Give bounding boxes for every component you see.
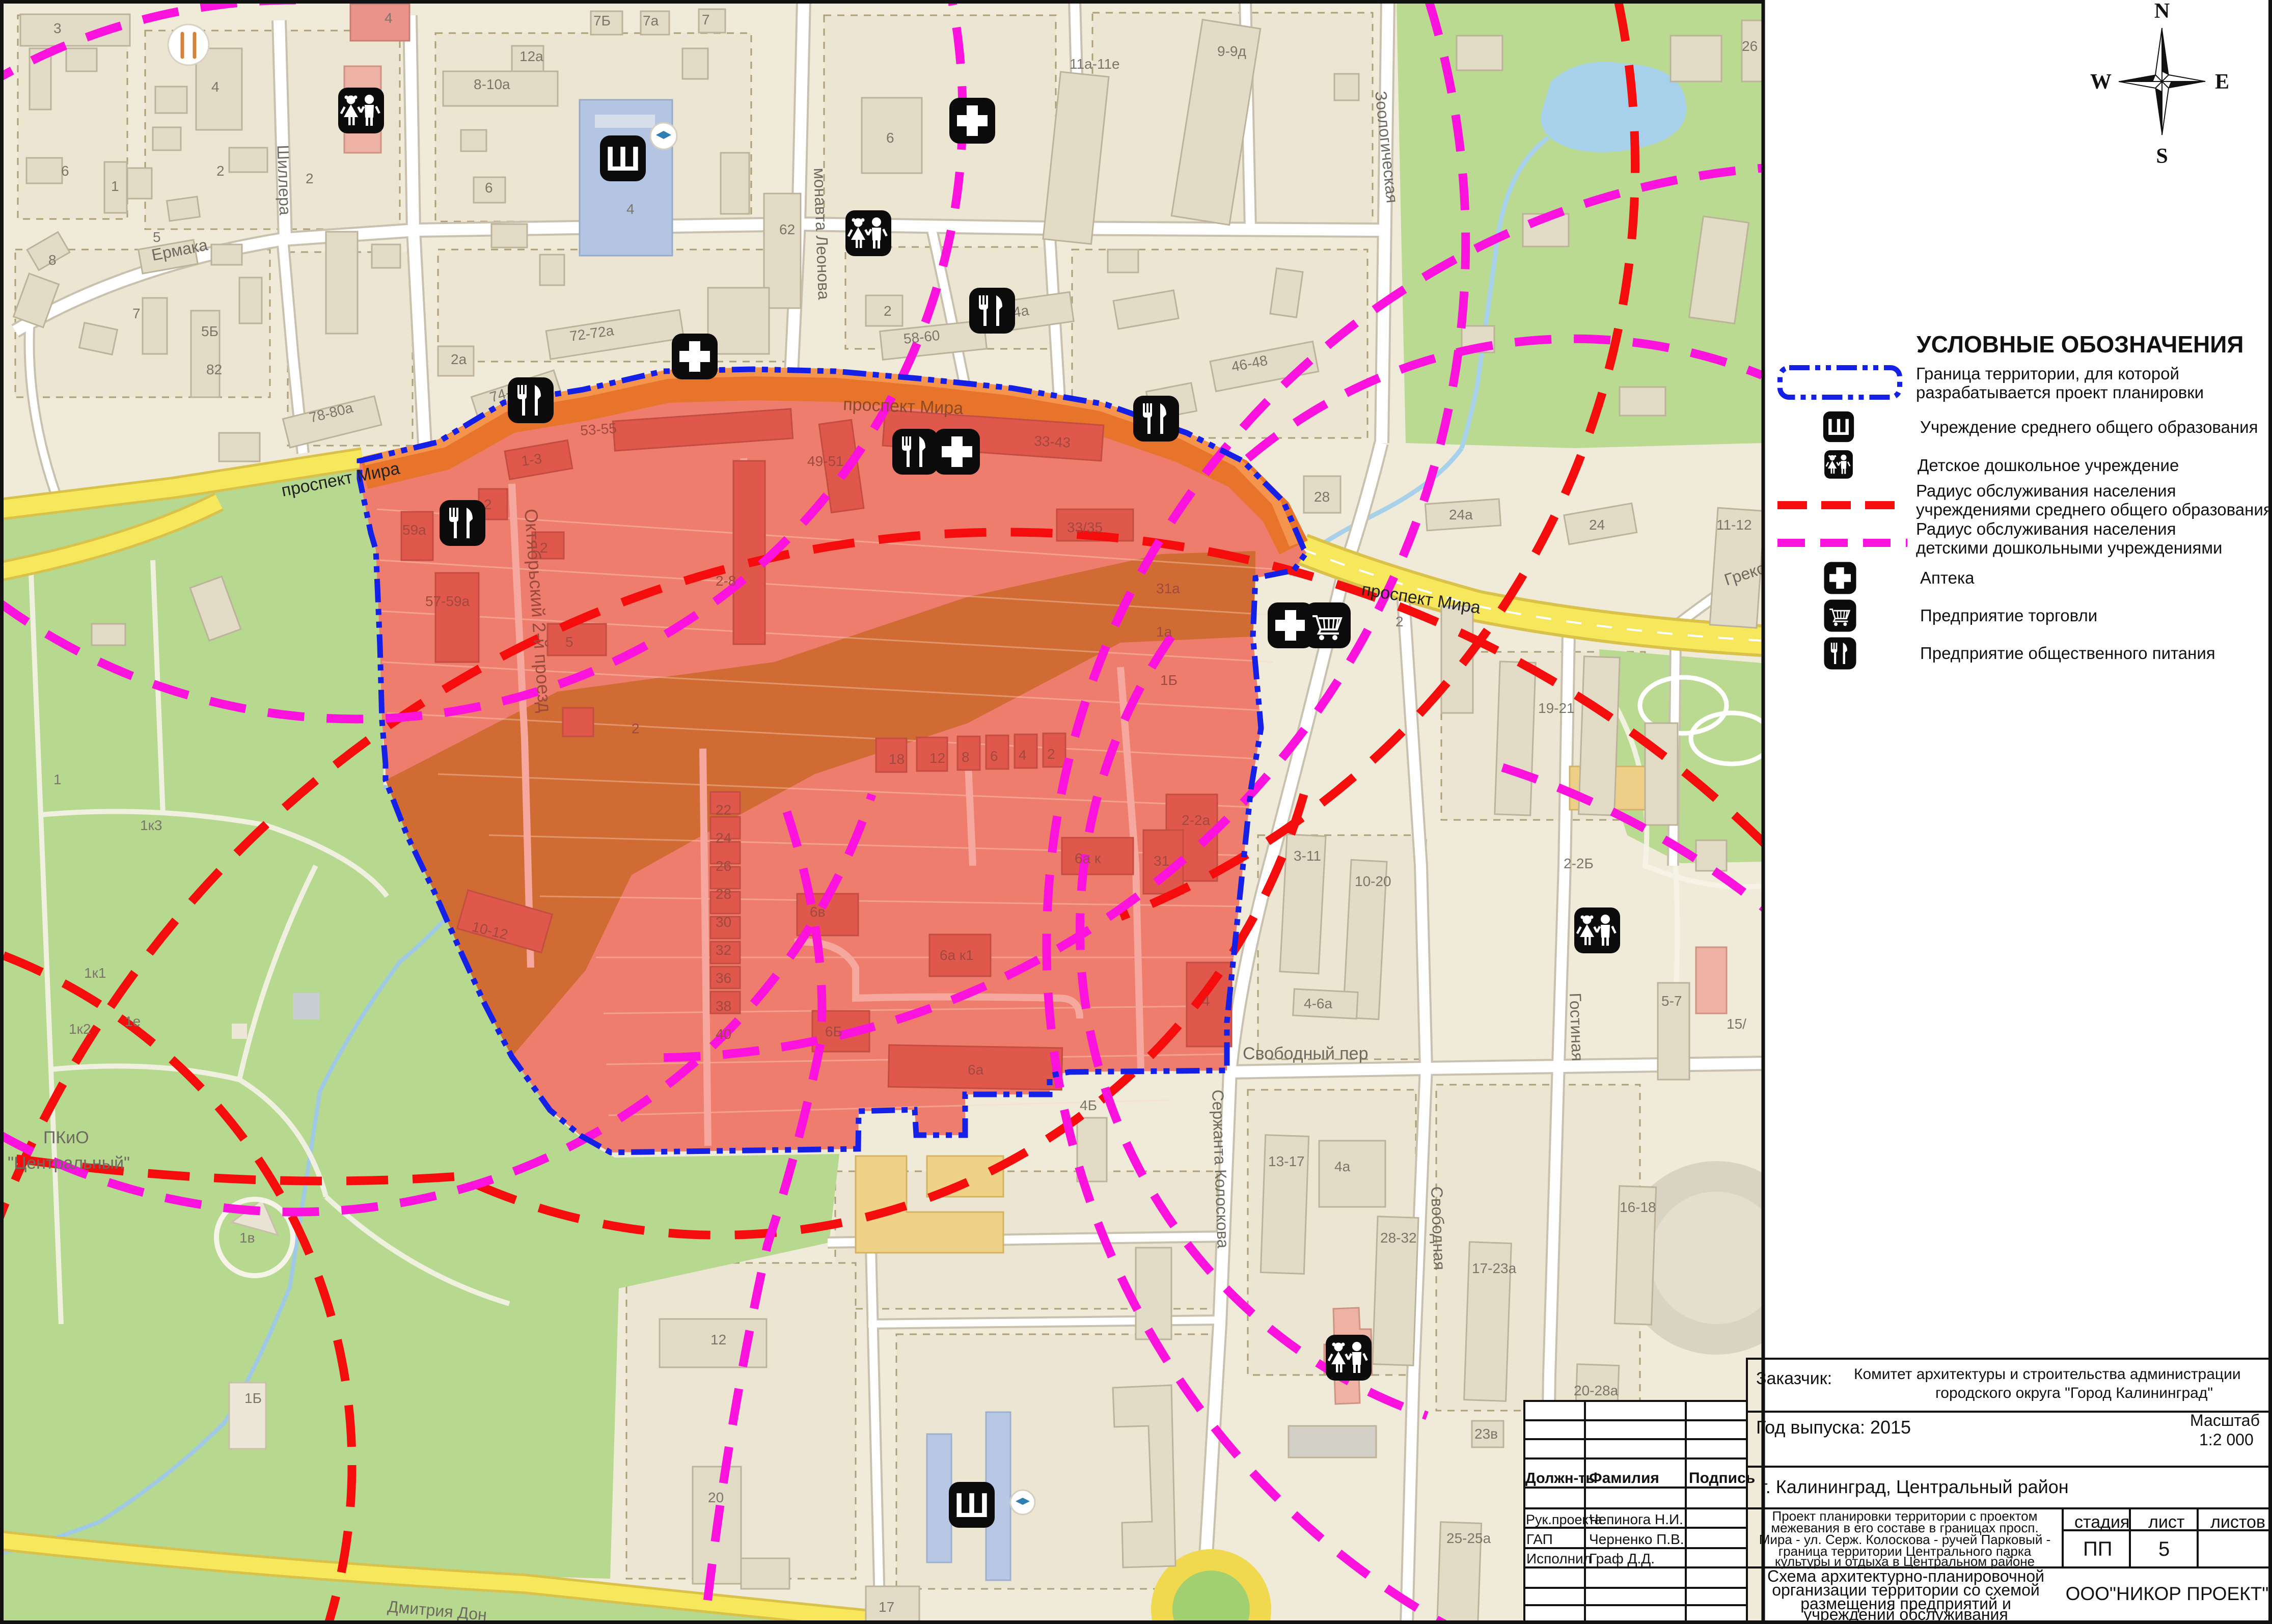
svg-text:5Б: 5Б <box>201 323 218 339</box>
svg-text:Исполнил: Исполнил <box>1526 1551 1592 1566</box>
svg-text:31a: 31a <box>1156 581 1180 596</box>
svg-text:Предприятие торговли: Предприятие торговли <box>1920 606 2097 625</box>
svg-text:ПП: ПП <box>2083 1538 2113 1560</box>
svg-text:ГАП: ГАП <box>1526 1531 1553 1547</box>
svg-text:4: 4 <box>1019 747 1027 763</box>
svg-text:4-6a: 4-6a <box>1304 996 1332 1011</box>
svg-text:38: 38 <box>716 998 731 1014</box>
svg-text:2-2Б: 2-2Б <box>1564 856 1594 871</box>
svg-text:31: 31 <box>1154 853 1169 869</box>
svg-text:17-23a: 17-23a <box>1472 1260 1517 1276</box>
svg-text:г. Калининград, Центральный ра: г. Калининград, Центральный район <box>1761 1476 2069 1497</box>
svg-text:1е: 1е <box>125 1013 141 1029</box>
svg-text:E: E <box>2215 70 2229 94</box>
svg-text:6: 6 <box>61 163 69 179</box>
svg-text:12: 12 <box>710 1332 726 1347</box>
svg-text:12: 12 <box>929 750 945 766</box>
svg-text:1к2: 1к2 <box>69 1021 91 1037</box>
svg-text:33-43: 33-43 <box>1034 433 1071 451</box>
svg-text:7Б: 7Б <box>593 13 611 29</box>
svg-text:1: 1 <box>53 772 62 787</box>
svg-text:20-28a: 20-28a <box>1574 1383 1619 1398</box>
svg-text:Предприятие общественного пита: Предприятие общественного питания <box>1920 644 2215 663</box>
svg-text:26: 26 <box>1742 38 1758 54</box>
svg-text:32: 32 <box>716 942 731 958</box>
svg-text:23в: 23в <box>1474 1426 1498 1442</box>
svg-text:36: 36 <box>716 970 731 986</box>
svg-text:5: 5 <box>2158 1538 2170 1560</box>
svg-text:2-8: 2-8 <box>716 573 736 589</box>
svg-text:6Б: 6Б <box>825 1024 842 1039</box>
svg-text:листов: листов <box>2210 1512 2265 1532</box>
svg-text:6а: 6а <box>968 1062 984 1078</box>
svg-text:57-59a: 57-59a <box>425 593 470 609</box>
svg-text:Аптека: Аптека <box>1920 568 1975 587</box>
svg-text:4: 4 <box>385 10 393 26</box>
svg-text:Комитет архитектуры и строител: Комитет архитектуры и строительства адми… <box>1854 1366 2241 1383</box>
svg-text:17: 17 <box>879 1599 894 1615</box>
svg-text:28: 28 <box>1314 489 1330 505</box>
svg-text:22: 22 <box>716 802 731 818</box>
svg-text:6: 6 <box>990 748 998 764</box>
svg-text:6а к: 6а к <box>1075 850 1101 866</box>
svg-text:N: N <box>2154 0 2170 23</box>
svg-text:6: 6 <box>886 130 894 146</box>
svg-text:2: 2 <box>1047 746 1055 762</box>
svg-text:Радиус обслуживания населения: Радиус обслуживания населения <box>1916 481 2176 500</box>
svg-text:25-25a: 25-25a <box>1446 1530 1491 1546</box>
svg-text:7: 7 <box>702 12 710 27</box>
svg-text:2: 2 <box>632 721 640 736</box>
svg-text:"Центральный": "Центральный" <box>8 1153 130 1173</box>
svg-text:16-18: 16-18 <box>1620 1199 1656 1215</box>
svg-text:Заказчик:: Заказчик: <box>1756 1369 1832 1388</box>
svg-text:8: 8 <box>962 749 970 765</box>
svg-text:53-55: 53-55 <box>580 420 617 438</box>
svg-text:Черненко П.В.: Черненко П.В. <box>1589 1531 1684 1547</box>
svg-text:1-3: 1-3 <box>521 451 543 469</box>
svg-text:40: 40 <box>716 1026 731 1042</box>
svg-text:4: 4 <box>626 201 635 217</box>
svg-text:7а: 7а <box>643 13 659 29</box>
svg-text:2a: 2a <box>451 351 467 367</box>
svg-text:9-9д: 9-9д <box>1217 43 1246 59</box>
svg-text:20: 20 <box>708 1490 724 1505</box>
svg-text:2: 2 <box>1395 614 1404 629</box>
svg-text:33/35: 33/35 <box>1067 519 1103 535</box>
svg-text:1Б: 1Б <box>244 1390 262 1406</box>
svg-text:лист: лист <box>2148 1512 2184 1532</box>
svg-text:10-20: 10-20 <box>1355 873 1391 889</box>
svg-text:Учреждение среднего общего обр: Учреждение среднего общего образования <box>1920 418 2258 436</box>
svg-text:24: 24 <box>1589 517 1605 533</box>
svg-text:1: 1 <box>111 178 119 194</box>
svg-text:6в: 6в <box>810 904 825 920</box>
svg-text:УСЛОВНЫЕ ОБОЗНАЧЕНИЯ: УСЛОВНЫЕ ОБОЗНАЧЕНИЯ <box>1917 331 2243 357</box>
svg-text:Свободный пер: Свободный пер <box>1243 1044 1368 1063</box>
svg-text:Фамилия: Фамилия <box>1589 1470 1659 1487</box>
svg-text:62: 62 <box>779 222 795 237</box>
svg-text:12a: 12a <box>519 48 543 64</box>
svg-text:1a: 1a <box>1156 624 1172 640</box>
svg-text:4: 4 <box>211 79 220 95</box>
svg-text:24: 24 <box>716 830 731 846</box>
svg-text:стадия: стадия <box>2074 1512 2129 1532</box>
svg-text:3-11: 3-11 <box>1294 848 1321 864</box>
svg-text:учреждениями среднего общего о: учреждениями среднего общего образования <box>1916 500 2272 519</box>
svg-text:28: 28 <box>716 886 731 902</box>
svg-text:ООО"НИКОР ПРОЕКТ": ООО"НИКОР ПРОЕКТ" <box>2066 1583 2269 1604</box>
svg-text:разрабатывается проект планиро: разрабатывается проект планировки <box>1916 383 2204 402</box>
svg-text:1Б: 1Б <box>1160 672 1178 688</box>
svg-text:1к1: 1к1 <box>84 965 106 981</box>
svg-text:7: 7 <box>132 306 141 321</box>
svg-text:городского округа "Город Калин: городского округа "Город Калининград" <box>1935 1385 2213 1401</box>
svg-text:19-21: 19-21 <box>1538 700 1575 716</box>
svg-text:1в: 1в <box>239 1230 255 1246</box>
svg-text:Граница территории, для которо: Граница территории, для которой <box>1916 364 2179 383</box>
svg-text:2-2a: 2-2a <box>1182 812 1210 828</box>
svg-text:26: 26 <box>716 858 731 874</box>
svg-text:Радиус обслуживания населения: Радиус обслуживания населения <box>1916 519 2176 538</box>
svg-text:W: W <box>2090 70 2112 94</box>
svg-text:49-51: 49-51 <box>807 453 844 469</box>
svg-text:5-7: 5-7 <box>1661 993 1682 1009</box>
svg-text:3: 3 <box>53 20 62 36</box>
svg-text:15/: 15/ <box>1727 1016 1746 1032</box>
svg-text:Граф Д.Д.: Граф Д.Д. <box>1589 1551 1655 1566</box>
svg-text:Детское дошкольное учреждение: Детское дошкольное учреждение <box>1918 456 2179 475</box>
svg-text:Должн-ть: Должн-ть <box>1525 1470 1595 1487</box>
svg-text:8-10a: 8-10a <box>474 76 510 92</box>
svg-text:4a: 4a <box>1334 1159 1351 1174</box>
svg-text:1:2 000: 1:2 000 <box>2199 1430 2254 1449</box>
svg-text:2: 2 <box>884 303 892 319</box>
svg-text:Свободная: Свободная <box>1428 1186 1449 1271</box>
svg-text:1к3: 1к3 <box>140 817 162 833</box>
svg-text:4Б: 4Б <box>1080 1097 1097 1113</box>
svg-text:6а к1: 6а к1 <box>940 947 974 963</box>
svg-text:Чепинога Н.И.: Чепинога Н.И. <box>1589 1511 1683 1527</box>
svg-text:24a: 24a <box>1449 507 1473 522</box>
svg-text:S: S <box>2156 145 2168 168</box>
svg-text:2: 2 <box>540 540 548 556</box>
svg-text:6: 6 <box>485 180 493 196</box>
svg-text:2: 2 <box>216 163 225 179</box>
svg-text:Год выпуска: 2015: Год выпуска: 2015 <box>1756 1417 1911 1438</box>
svg-text:Подпись: Подпись <box>1689 1470 1755 1487</box>
svg-text:Масштаб: Масштаб <box>2190 1411 2260 1429</box>
svg-text:5: 5 <box>565 634 573 650</box>
svg-text:Гостиная: Гостиная <box>1566 993 1587 1061</box>
svg-text:8: 8 <box>48 252 57 268</box>
svg-text:ПКиО: ПКиО <box>43 1128 89 1147</box>
svg-text:5: 5 <box>153 229 161 245</box>
svg-text:детскими дошкольными учреждени: детскими дошкольными учреждениями <box>1916 538 2222 557</box>
svg-text:Шиллера: Шиллера <box>273 145 294 215</box>
svg-text:2: 2 <box>306 171 314 186</box>
svg-text:13-17: 13-17 <box>1268 1153 1305 1169</box>
svg-text:11-12: 11-12 <box>1716 517 1752 533</box>
svg-text:82: 82 <box>206 362 222 377</box>
svg-text:28-32: 28-32 <box>1380 1230 1417 1246</box>
svg-text:18: 18 <box>889 751 905 767</box>
svg-text:30: 30 <box>716 914 731 930</box>
svg-text:59a: 59a <box>402 522 426 538</box>
svg-text:11а-11е: 11а-11е <box>1070 56 1120 72</box>
svg-text:4: 4 <box>1202 993 1210 1009</box>
